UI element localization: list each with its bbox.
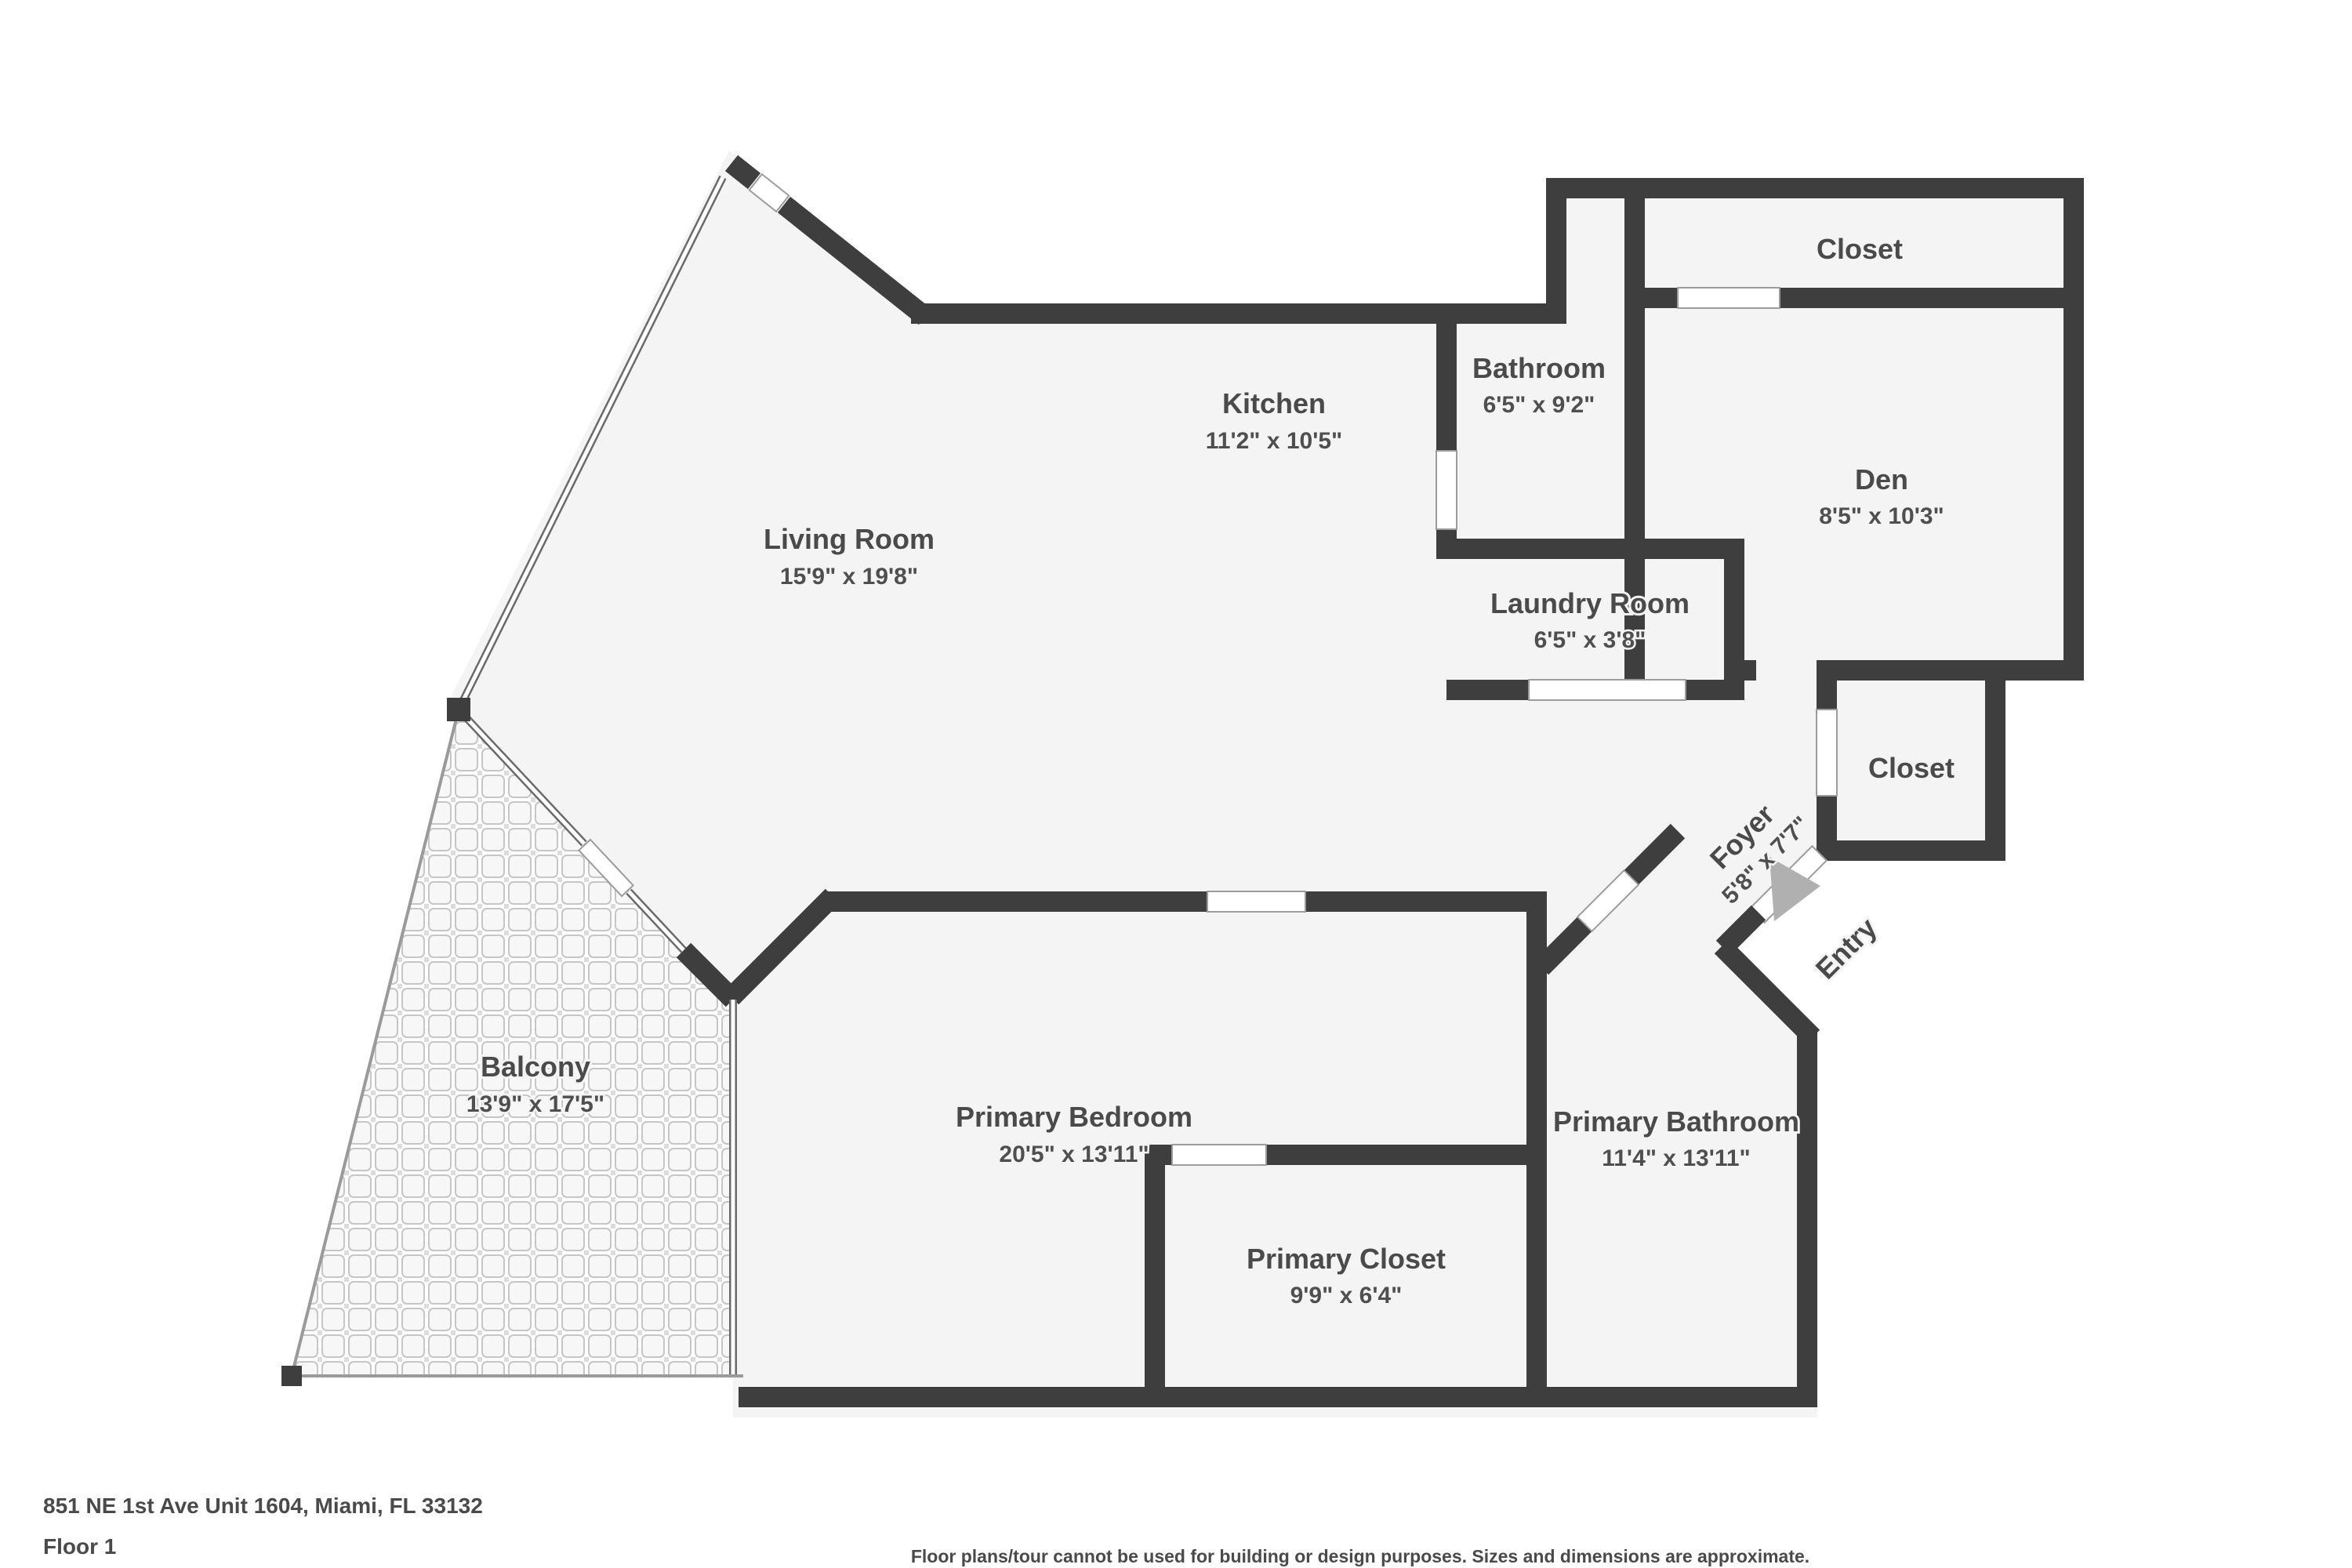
room-label-laundry: Laundry Room bbox=[1490, 587, 1690, 619]
room-label-primary-bathroom: Primary Bathroom bbox=[1553, 1105, 1799, 1138]
balcony-corner-stub-bottom bbox=[281, 1366, 302, 1386]
room-dims-laundry: 6'5" x 3'8" bbox=[1534, 627, 1646, 653]
door-gap-primary-closet bbox=[1172, 1145, 1266, 1165]
room-label-den: Den bbox=[1855, 463, 1908, 495]
disclaimer-text: Floor plans/tour cannot be used for buil… bbox=[911, 1546, 1809, 1566]
room-dims-living-room: 15'9" x 19'8" bbox=[780, 564, 918, 590]
room-label-living-room: Living Room bbox=[764, 523, 935, 555]
room-dims-primary-bathroom: 11'4" x 13'11" bbox=[1602, 1145, 1751, 1171]
room-dims-balcony: 13'9" x 17'5" bbox=[466, 1091, 604, 1117]
room-label-primary-bedroom: Primary Bedroom bbox=[956, 1101, 1192, 1133]
entry-label-group: Entry bbox=[1809, 912, 1883, 985]
room-label-closet-top: Closet bbox=[1817, 233, 1903, 265]
door-gap-laundry bbox=[1529, 680, 1686, 700]
floor-plan-page: Living Room 15'9" x 19'8" Kitchen 11'2" … bbox=[0, 0, 2352, 1568]
room-label-closet-foyer: Closet bbox=[1868, 752, 1955, 784]
door-gap-bathroom bbox=[1436, 451, 1457, 529]
door-gap-foyer-closet bbox=[1817, 710, 1837, 796]
room-dims-primary-bedroom: 20'5" x 13'11" bbox=[999, 1142, 1149, 1167]
room-label-primary-closet: Primary Closet bbox=[1247, 1243, 1446, 1275]
balcony-corner-stub-top bbox=[447, 698, 470, 721]
room-label-balcony: Balcony bbox=[481, 1051, 590, 1083]
room-label-bathroom: Bathroom bbox=[1472, 352, 1606, 384]
room-label-entry: Entry bbox=[1809, 912, 1883, 985]
door-gap-bedroom bbox=[1207, 891, 1305, 912]
room-dims-primary-closet: 9'9" x 6'4" bbox=[1290, 1283, 1403, 1308]
address-line: 851 NE 1st Ave Unit 1604, Miami, FL 3313… bbox=[43, 1494, 483, 1518]
room-dims-bathroom: 6'5" x 9'2" bbox=[1483, 392, 1595, 418]
room-dims-den: 8'5" x 10'3" bbox=[1819, 503, 1944, 529]
floor-label: Floor 1 bbox=[43, 1534, 116, 1559]
floor-plan-canvas: Living Room 15'9" x 19'8" Kitchen 11'2" … bbox=[0, 0, 2352, 1568]
room-dims-kitchen: 11'2" x 10'5" bbox=[1206, 428, 1343, 454]
door-gap-closet-top bbox=[1678, 288, 1780, 308]
room-label-kitchen: Kitchen bbox=[1222, 387, 1326, 419]
